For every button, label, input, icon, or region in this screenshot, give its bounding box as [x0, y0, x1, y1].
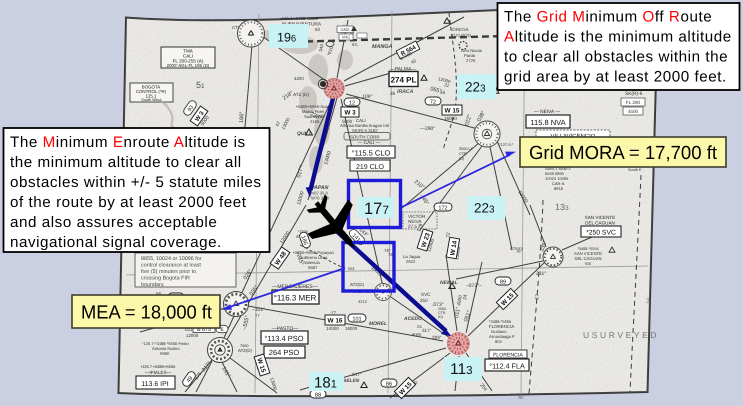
- svg-text:Arrundaaga P: Arrundaaga P: [489, 334, 515, 339]
- svg-text:503: 503: [348, 267, 354, 271]
- svg-text:172: 172: [438, 205, 447, 211]
- svg-text:*250 SVC: *250 SVC: [586, 230, 616, 237]
- svg-text:FL 280: FL 280: [626, 100, 641, 105]
- svg-text:75°: 75°: [518, 395, 524, 400]
- svg-text:VHC: VHC: [342, 35, 351, 40]
- svg-text:803: 803: [495, 339, 502, 344]
- svg-text:27.5: 27.5: [408, 224, 417, 229]
- svg-text:the minimum altitude to clear: the minimum altitude to clear all: [10, 154, 242, 171]
- svg-text:The Grid Minimum Off Route: The Grid Minimum Off Route: [504, 9, 712, 26]
- svg-text:The Minimum Enroute Altitude i: The Minimum Enroute Altitude is: [10, 134, 246, 151]
- svg-text:6: 6: [221, 327, 224, 333]
- svg-text:250: 250: [420, 298, 428, 303]
- svg-text:–072°–: –072°–: [466, 283, 482, 289]
- svg-text:4500: 4500: [628, 109, 639, 114]
- svg-text:— CALI —: — CALI —: [358, 140, 381, 146]
- svg-text:12000: 12000: [186, 333, 199, 338]
- svg-text:3: 3: [646, 298, 650, 305]
- svg-text:ATZ (D): ATZ (D): [293, 92, 309, 97]
- svg-text:USURVEYED: USURVEYED: [583, 330, 659, 340]
- svg-text:OREGA: OREGA: [452, 27, 469, 32]
- svg-text:89: 89: [500, 279, 506, 285]
- svg-text:SAN VICENTE: SAN VICENTE: [585, 215, 616, 220]
- svg-text:113.6 IPI: 113.6 IPI: [141, 381, 169, 388]
- svg-text:ATZ(D): ATZ(D): [350, 282, 365, 287]
- svg-text:°113.4 PSO: °113.4 PSO: [264, 334, 303, 343]
- svg-text:2729: 2729: [466, 58, 476, 63]
- svg-text:2622: 2622: [406, 259, 416, 264]
- svg-text:317°: 317°: [422, 328, 432, 333]
- svg-text:50: 50: [315, 27, 320, 32]
- svg-text:264 PSO: 264 PSO: [269, 348, 300, 357]
- svg-text:247°: 247°: [352, 372, 362, 377]
- svg-text:12: 12: [349, 100, 355, 106]
- svg-text:CTR: CTR: [459, 152, 467, 156]
- svg-text:five (5) minutes prior to: five (5) minutes prior to: [141, 269, 196, 275]
- svg-text:ACEDO: ACEDO: [403, 316, 422, 322]
- svg-text:8855, 10024 or 10096 for: 8855, 10024 or 10096 for: [141, 256, 202, 262]
- svg-text:South E: South E: [628, 168, 642, 172]
- svg-text:*127.5-*: *127.5-*: [499, 142, 514, 147]
- svg-text:16000: 16000: [444, 116, 457, 121]
- svg-text:274 PL: 274 PL: [391, 76, 417, 85]
- svg-text:109°: 109°: [362, 94, 372, 100]
- svg-text:77: 77: [255, 313, 260, 318]
- svg-text:231°: 231°: [536, 271, 546, 277]
- svg-text:115.8 NVA: 115.8 NVA: [530, 118, 565, 127]
- svg-text:—IPIALES—: —IPIALES—: [145, 370, 172, 375]
- svg-text:South West: South West: [141, 98, 162, 102]
- svg-text:°116.3 MER: °116.3 MER: [274, 294, 317, 303]
- svg-text:86: 86: [386, 381, 392, 387]
- svg-text:5980: 5980: [160, 351, 170, 356]
- svg-text:DYLBOG: DYLBOG: [452, 33, 472, 38]
- svg-text:and also assures acceptable: and also assures acceptable: [10, 214, 217, 231]
- svg-text:obstacles within +/- 5 statute: obstacles within +/- 5 statute miles: [10, 174, 262, 191]
- svg-text:DEL CAGUAN: DEL CAGUAN: [574, 256, 601, 261]
- svg-text:QUILI: QUILI: [297, 131, 311, 137]
- svg-text:4200: 4200: [294, 76, 304, 81]
- svg-text:ATZ(D): ATZ(D): [238, 348, 253, 353]
- svg-text:5687: 5687: [308, 265, 318, 270]
- svg-text:3500 LL: 3500 LL: [459, 147, 473, 151]
- svg-text:8918: 8918: [554, 186, 564, 191]
- svg-text:(D): (D): [438, 315, 443, 319]
- svg-text:crossing Bogota FIR: crossing Bogota FIR: [141, 276, 190, 282]
- svg-text:W 15: W 15: [445, 108, 460, 115]
- svg-text:•126.7-•3488-•5556: •126.7-•3488-•5556: [141, 364, 176, 369]
- svg-text:MANGA: MANGA: [372, 44, 392, 50]
- svg-text:MEA = 18,000 ft: MEA = 18,000 ft: [81, 303, 213, 324]
- svg-text:navigational signal coverage.: navigational signal coverage.: [10, 234, 222, 251]
- svg-text:•126.7-•3488-•5556: •126.7-•3488-•5556: [280, 16, 319, 21]
- svg-text:CTR(D): CTR(D): [510, 247, 524, 251]
- svg-text:Altitude is the minimum altitu: Altitude is the minimum altitude: [504, 29, 732, 46]
- svg-text:72: 72: [430, 99, 436, 105]
- svg-text:SK(R)-6: SK(R)-6: [625, 91, 643, 97]
- svg-text:of the route by at least 2000: of the route by at least 2000 feet: [10, 194, 247, 211]
- svg-text:(D): (D): [459, 157, 465, 161]
- svg-text:IRACA: IRACA: [397, 89, 414, 95]
- svg-text:186°: 186°: [239, 111, 245, 123]
- svg-text:283°: 283°: [432, 335, 442, 340]
- svg-text:control clearance at least: control clearance at least: [141, 263, 201, 269]
- svg-text:grid area by at least 2000 fee: grid area by at least 2000 feet.: [504, 69, 727, 86]
- svg-text:219 CLO: 219 CLO: [356, 164, 385, 171]
- svg-text:boundary.: boundary.: [141, 282, 165, 288]
- svg-text:—290°: —290°: [420, 126, 435, 132]
- svg-text:NEMAL: NEMAL: [440, 280, 458, 286]
- svg-text:14000: 14000: [326, 326, 339, 331]
- svg-text:196: 196: [277, 31, 296, 45]
- svg-text:26: 26: [390, 91, 396, 96]
- svg-text:W 3: W 3: [344, 110, 356, 117]
- svg-text:9000: 9000: [412, 332, 422, 337]
- svg-text:2000' AGL-FL 195 (D): 2000' AGL-FL 195 (D): [167, 63, 210, 68]
- svg-text:101: 101: [352, 316, 361, 322]
- svg-text:Grid MORA = 17,700 ft: Grid MORA = 17,700 ft: [529, 143, 718, 164]
- svg-text:-77: -77: [330, 310, 337, 315]
- svg-text:SOUTH CORR: SOUTH CORR: [350, 134, 380, 139]
- svg-text:— NEIVA —: — NEIVA —: [534, 109, 560, 115]
- svg-text:63,: 63,: [352, 42, 358, 47]
- svg-text:to clear all obstacles within: to clear all obstacles within the: [504, 49, 728, 66]
- svg-text:MOREL: MOREL: [369, 321, 387, 327]
- svg-text:°115.5 CLO: °115.5 CLO: [352, 149, 391, 158]
- svg-text:4212: 4212: [358, 299, 368, 304]
- svg-text:920: 920: [585, 262, 591, 266]
- svg-text:°112.4 FLA: °112.4 FLA: [489, 362, 525, 371]
- svg-text:W 16: W 16: [328, 318, 343, 325]
- svg-text:GND: GND: [341, 27, 350, 32]
- svg-text:88: 88: [315, 392, 321, 398]
- svg-text:177: 177: [364, 200, 389, 218]
- svg-text:DEL CAGUAN: DEL CAGUAN: [585, 221, 615, 226]
- svg-text:16000: 16000: [345, 326, 358, 331]
- svg-text:FLORENCIA: FLORENCIA: [493, 353, 523, 359]
- svg-text:5000: 5000: [342, 119, 353, 124]
- svg-text:SVC: SVC: [421, 292, 431, 297]
- svg-text:BELEN: BELEN: [343, 378, 360, 384]
- svg-text:7000: 7000: [240, 344, 248, 348]
